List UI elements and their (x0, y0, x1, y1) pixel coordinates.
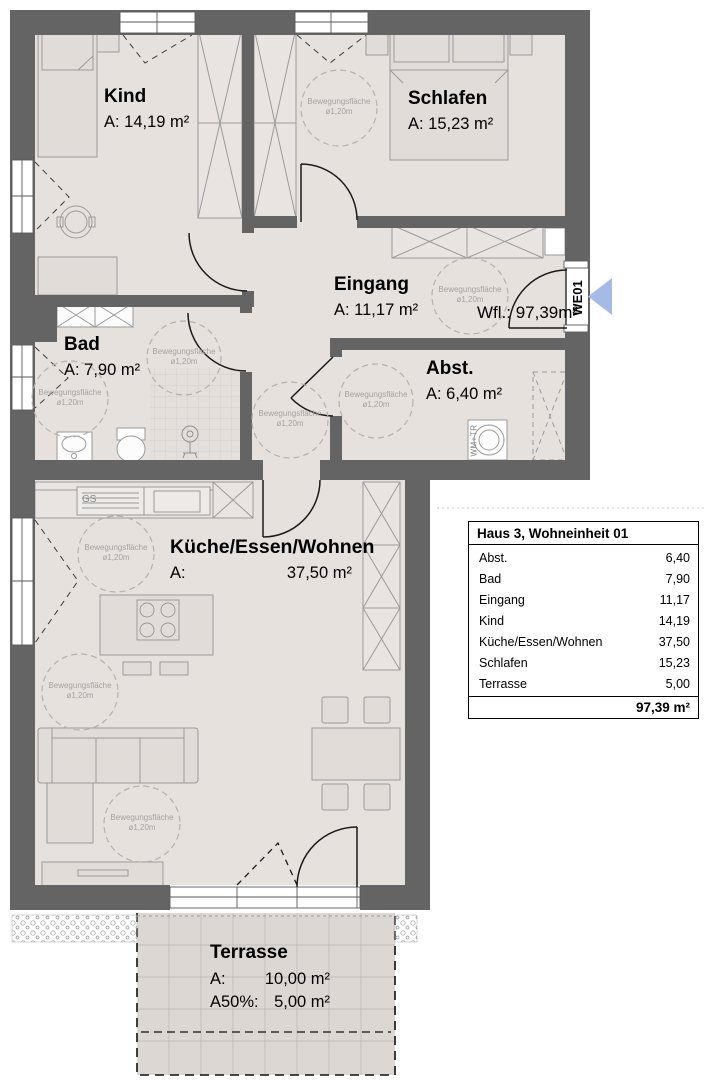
table-row: Kind 14,19 (469, 610, 698, 631)
movement-label: Bewegungsflächeø1,20m (71, 543, 161, 563)
window-kind-left (12, 160, 33, 233)
table-row: Bad 7,90 (469, 568, 698, 589)
movement-label: Bewegungsflächeø1,20m (331, 390, 421, 410)
room-name: Bad (64, 334, 140, 356)
row-value: 14,19 (659, 614, 690, 628)
kitchen-tall-cabinet (213, 482, 253, 518)
row-label: Terrasse (479, 677, 527, 691)
row-value: 37,50 (659, 635, 690, 649)
room-label-kind: Kind A: 14,19 m² (104, 86, 189, 132)
room-area: A: 11,17 m² (334, 301, 418, 320)
room-name: Schlafen (408, 88, 493, 110)
area-value: 10,00 m² (265, 970, 330, 989)
desk-kind (38, 257, 117, 295)
storage-column (363, 482, 400, 670)
area-label: A: (210, 970, 226, 989)
area-table: Haus 3, Wohneinheit 01 Abst. 6,40 Bad 7,… (468, 521, 699, 719)
room-label-eingang: Eingang A: 11,17 m² (334, 274, 418, 320)
movement-label: Bewegungsflächeø1,20m (294, 97, 384, 117)
room-area: A: 15,23 m² (408, 115, 493, 134)
table-row: Schlafen 15,23 (469, 652, 698, 673)
window-living-left (12, 518, 33, 645)
row-label: Bad (479, 572, 501, 586)
room-label-schlafen: Schlafen A: 15,23 m² (408, 88, 493, 134)
sideboard (42, 862, 163, 888)
room-label-kueche: Küche/Essen/Wohnen A: 37,50 m² (170, 536, 352, 583)
table-row: Abst. 6,40 (469, 547, 698, 568)
room-label-bad: Bad A: 7,90 m² (64, 334, 140, 380)
toilet (117, 428, 145, 462)
movement-label: Bewegungsflächeø1,20m (25, 388, 115, 408)
movement-label: Bewegungsflächeø1,20m (97, 813, 187, 833)
room-name: Terrasse (210, 942, 330, 964)
table-total: 97,39 m² (469, 696, 698, 718)
hall-sideboard (392, 225, 543, 258)
area-label: A: (170, 564, 186, 583)
movement-label: Bewegungsflächeø1,20m (139, 347, 229, 367)
wardrobe-kind (198, 28, 242, 218)
room-name: Abst. (426, 358, 502, 380)
movement-label: Bewegungsflächeø1,20m (245, 409, 335, 429)
wall-niche (545, 228, 565, 255)
washer-dryer-label: WM+TR (470, 419, 479, 463)
table-row: Eingang 11,17 (469, 589, 698, 610)
table-row: Terrasse 5,00 (469, 673, 698, 694)
room-name: Kind (104, 86, 189, 108)
room-name: Eingang (334, 274, 418, 296)
terrace-window-door (170, 887, 360, 908)
movement-label: Bewegungsflächeø1,20m (35, 681, 125, 701)
row-value: 7,90 (666, 572, 690, 586)
room-area: A: 14,19 m² (104, 113, 189, 132)
area-value: 37,50 m² (287, 564, 352, 583)
row-value: 6,40 (666, 551, 690, 565)
kitchen-sink (144, 487, 210, 515)
room-area: A: 6,40 m² (426, 385, 502, 404)
movement-label: Bewegungsflächeø1,20m (425, 285, 515, 305)
row-value: 11,17 (660, 593, 690, 607)
row-value: 5,00 (666, 677, 690, 691)
row-label: Abst. (479, 551, 508, 565)
table-title: Haus 3, Wohneinheit 01 (469, 522, 698, 545)
row-value: 15,23 (659, 656, 690, 670)
room-area: A: 7,90 m² (64, 361, 140, 380)
room-name: Küche/Essen/Wohnen (170, 536, 352, 558)
dishwasher-label: GS (82, 494, 96, 505)
floor-plan-page: Kind A: 14,19 m² Schlafen A: 15,23 m² Ei… (0, 0, 706, 1080)
area50-value: 5,00 m² (274, 993, 330, 1012)
room-label-terrasse: Terrasse A: 10,00 m² A50%: 5,00 m² (210, 942, 330, 1012)
unit-tag: WE01 (549, 287, 605, 309)
window-kind-top (120, 12, 195, 33)
row-label: Küche/Essen/Wohnen (479, 635, 602, 649)
row-label: Schlafen (479, 656, 528, 670)
room-label-abst: Abst. A: 6,40 m² (426, 358, 502, 404)
window-schlafen-top (295, 12, 368, 33)
wardrobe-schlafen (254, 28, 296, 218)
row-label: Eingang (479, 593, 525, 607)
table-row: Küche/Essen/Wohnen 37,50 (469, 631, 698, 652)
row-label: Kind (479, 614, 504, 628)
area50-label: A50%: (210, 993, 259, 1012)
